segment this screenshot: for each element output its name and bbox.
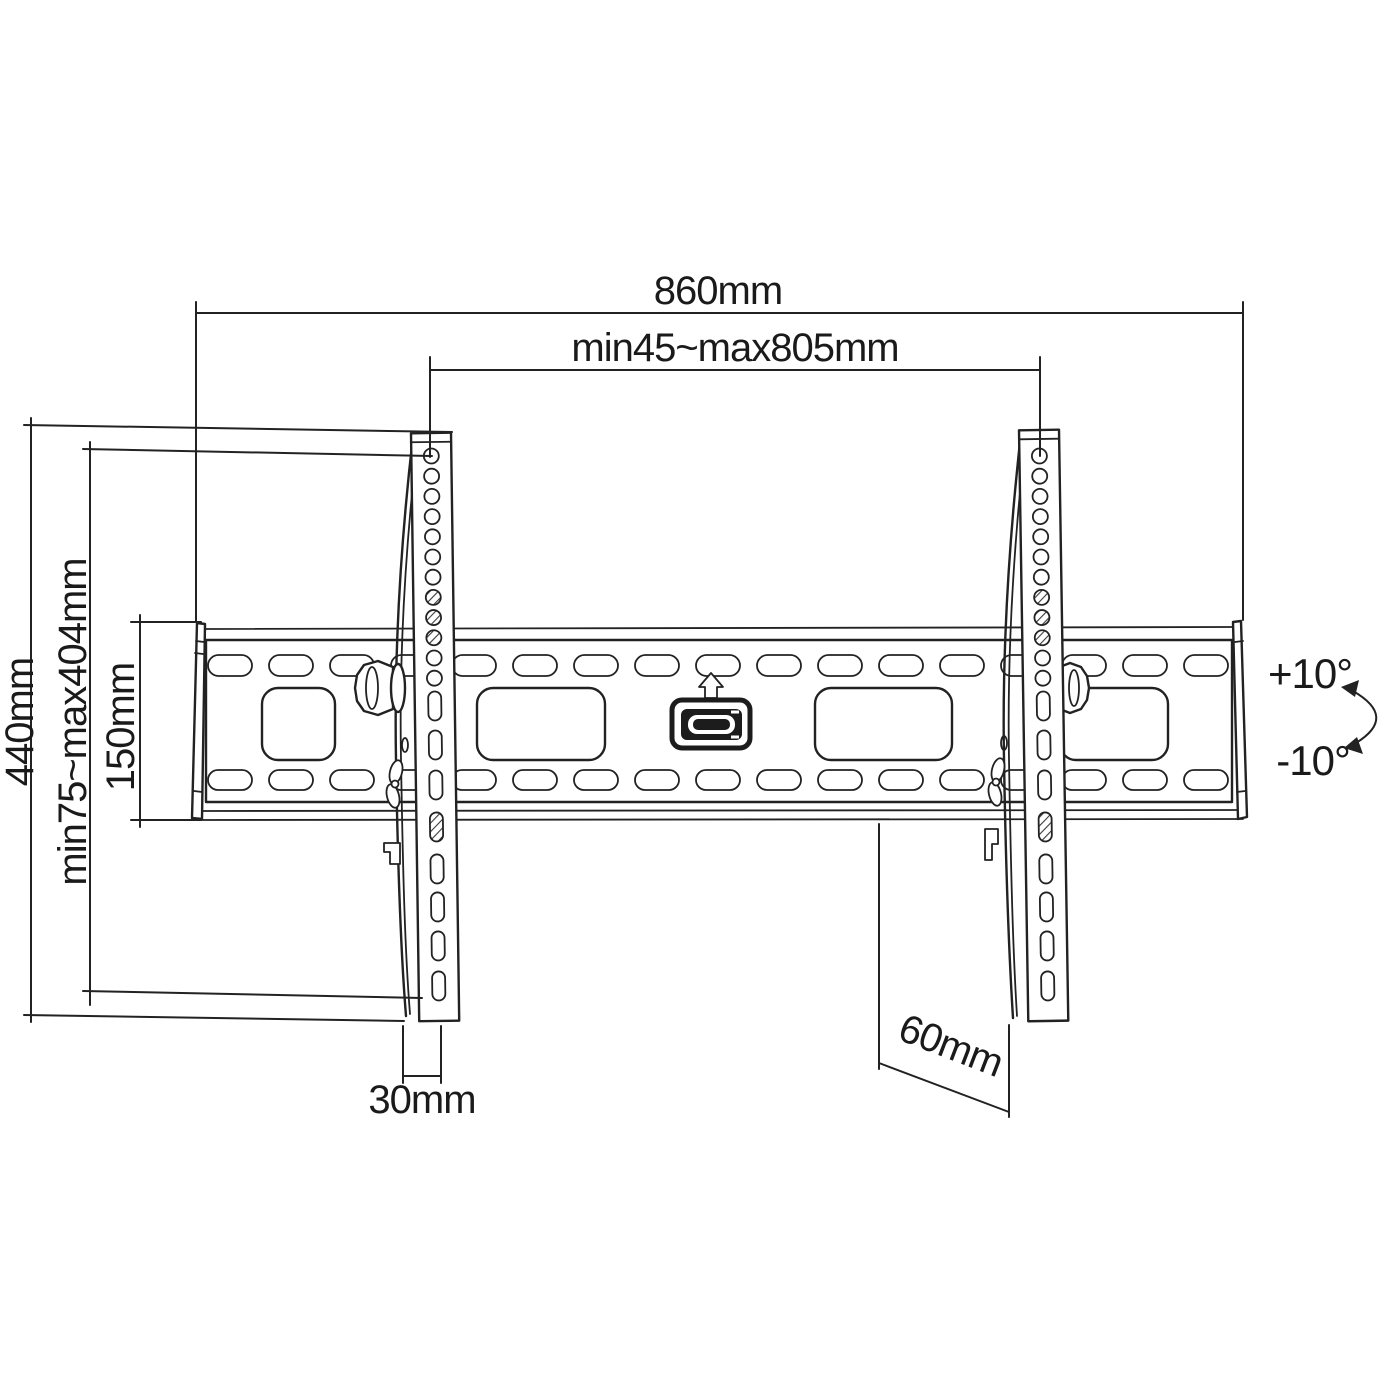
left-cap-bend-mark-top xyxy=(196,641,204,642)
bracket-slot xyxy=(1040,931,1053,960)
wall-plate-cutout xyxy=(477,688,605,760)
bracket-hole xyxy=(1034,570,1049,585)
dim-mount-height-range-label: min75~max404mm xyxy=(51,558,95,885)
bracket-hole xyxy=(426,610,441,625)
bracket-hole xyxy=(1035,650,1050,665)
dim-ext-line xyxy=(83,449,432,456)
wall-plate-slot xyxy=(513,770,557,790)
bracket-hole xyxy=(427,671,442,686)
left-bracket-top-edge xyxy=(411,442,451,443)
left-cap-bend-mark-bottom xyxy=(194,791,202,792)
wall-plate-left-end-cap xyxy=(192,623,205,819)
tilt-angle-indicator: +10° -10° xyxy=(1268,650,1376,784)
dim-overall-height-label: 440mm xyxy=(0,658,42,786)
bracket-hole xyxy=(424,469,439,484)
bracket-hole xyxy=(425,549,440,564)
dim-ext-line xyxy=(83,991,422,998)
bracket-hole xyxy=(1035,630,1050,645)
wall-plate-slot xyxy=(940,655,984,676)
bracket-hole xyxy=(427,650,442,665)
bracket-slot xyxy=(429,770,442,799)
bracket-hole xyxy=(426,590,441,605)
wall-plate-slot xyxy=(208,655,252,676)
wall-plate-slot xyxy=(1123,655,1167,676)
left-bracket-knob xyxy=(355,661,405,715)
dim-bracket-depth: 30mm xyxy=(368,1026,475,1122)
left-clip-pivot xyxy=(392,781,399,788)
wall-plate-slot xyxy=(757,655,801,676)
wall-plate-right-end-cap xyxy=(1233,621,1247,819)
wall-plate-slot xyxy=(1062,770,1106,790)
right-cap-bend-mark-bottom xyxy=(1237,791,1245,792)
tilt-up-label: +10° xyxy=(1268,650,1352,697)
left-knob-washer xyxy=(391,664,405,712)
bracket-slot xyxy=(1040,892,1053,921)
wall-plate-cutout xyxy=(815,688,952,760)
wall-plate-cutout xyxy=(262,688,335,760)
bracket-slot xyxy=(431,931,444,960)
bracket-slot xyxy=(1039,812,1052,841)
wall-plate-slot xyxy=(269,655,313,676)
left-bracket-strip xyxy=(411,433,459,1022)
bracket-slot xyxy=(1038,770,1051,799)
wall-plate-slot xyxy=(879,770,923,790)
right-clip-pivot xyxy=(993,779,1000,786)
wall-plate-slot xyxy=(574,655,618,676)
dimensional-drawing: 860mm min45~max805mm 440mm min75~max404m… xyxy=(0,0,1400,1400)
wall-plate-slot xyxy=(818,770,862,790)
wall-plate-slot xyxy=(696,770,740,790)
bracket-slot xyxy=(1037,730,1050,759)
bracket-slot xyxy=(1041,971,1054,1000)
right-bracket-strip xyxy=(1019,430,1068,1022)
dim-mount-width-range-label: min45~max805mm xyxy=(571,326,898,370)
wall-plate-slot xyxy=(452,770,496,790)
wall-plate-slot xyxy=(330,770,374,790)
bracket-slot xyxy=(431,892,444,921)
bracket-slot xyxy=(428,691,441,720)
tilt-down-label: -10° xyxy=(1276,737,1350,784)
wall-plate-slot xyxy=(635,770,679,790)
wall-plate-slot xyxy=(452,655,496,676)
bracket-hole xyxy=(425,509,440,524)
bracket-hole xyxy=(426,630,441,645)
wall-plate-slot xyxy=(635,655,679,676)
wall-plate-slot-row-bottom xyxy=(208,770,1228,790)
wall-plate xyxy=(192,621,1247,820)
bracket-hole xyxy=(1034,590,1049,605)
bracket-hole xyxy=(1033,549,1048,564)
right-cap-bend-mark-top xyxy=(1235,641,1243,642)
wall-plate-slot xyxy=(1123,770,1167,790)
dim-overall-width-label: 860mm xyxy=(654,269,782,313)
wall-plate-slot xyxy=(940,770,984,790)
dim-ext-line xyxy=(24,1015,404,1021)
bracket-hole xyxy=(424,489,439,504)
bracket-slot xyxy=(429,730,442,759)
bracket-slot xyxy=(430,812,443,841)
wall-plate-slot xyxy=(1184,770,1228,790)
bracket-hole xyxy=(425,529,440,544)
bracket-slot xyxy=(430,854,443,883)
wall-plate-top-flange xyxy=(206,627,1233,629)
left-bracket-hook xyxy=(384,843,400,864)
bracket-hole xyxy=(1035,671,1050,686)
right-bracket-hook xyxy=(985,829,998,860)
wall-plate-slot xyxy=(818,655,862,676)
dim-bracket-depth-label: 30mm xyxy=(368,1078,475,1122)
wall-plate-bottom-lip xyxy=(197,819,1243,820)
bracket-hole xyxy=(1032,469,1047,484)
latch-slider-inner xyxy=(693,719,730,730)
drawing-canvas: 860mm min45~max805mm 440mm min75~max404m… xyxy=(0,0,1400,1400)
left-cap-bend-mark-top2 xyxy=(195,653,203,654)
wall-plate-slot xyxy=(574,770,618,790)
wall-plate-bottom-flange xyxy=(202,810,1238,811)
dim-mount-width-range: min45~max805mm xyxy=(430,326,1040,457)
wall-plate-slot xyxy=(696,655,740,676)
bracket-hole xyxy=(1032,489,1047,504)
wall-plate-slot xyxy=(269,770,313,790)
tilt-arc-arrow xyxy=(1353,691,1376,743)
bracket-hole xyxy=(1034,610,1049,625)
dim-bottom-clearance: 60mm xyxy=(879,824,1009,1117)
wall-plate-slot xyxy=(879,655,923,676)
bracket-hole xyxy=(1033,509,1048,524)
dim-overall-width: 860mm xyxy=(196,269,1243,621)
bracket-slot xyxy=(1037,691,1050,720)
dim-wall-plate-height-label: 150mm xyxy=(99,663,143,791)
dim-wall-plate-height: 150mm xyxy=(99,615,201,827)
wall-plate-slot xyxy=(208,770,252,790)
bracket-slot xyxy=(1039,854,1052,883)
dim-ext-line xyxy=(24,425,452,432)
wall-plate-slot xyxy=(757,770,801,790)
bracket-hole xyxy=(1033,529,1048,544)
bracket-hole xyxy=(425,570,440,585)
wall-plate-slot xyxy=(1184,655,1228,676)
bracket-slot xyxy=(432,971,445,1000)
wall-plate-slot xyxy=(513,655,557,676)
